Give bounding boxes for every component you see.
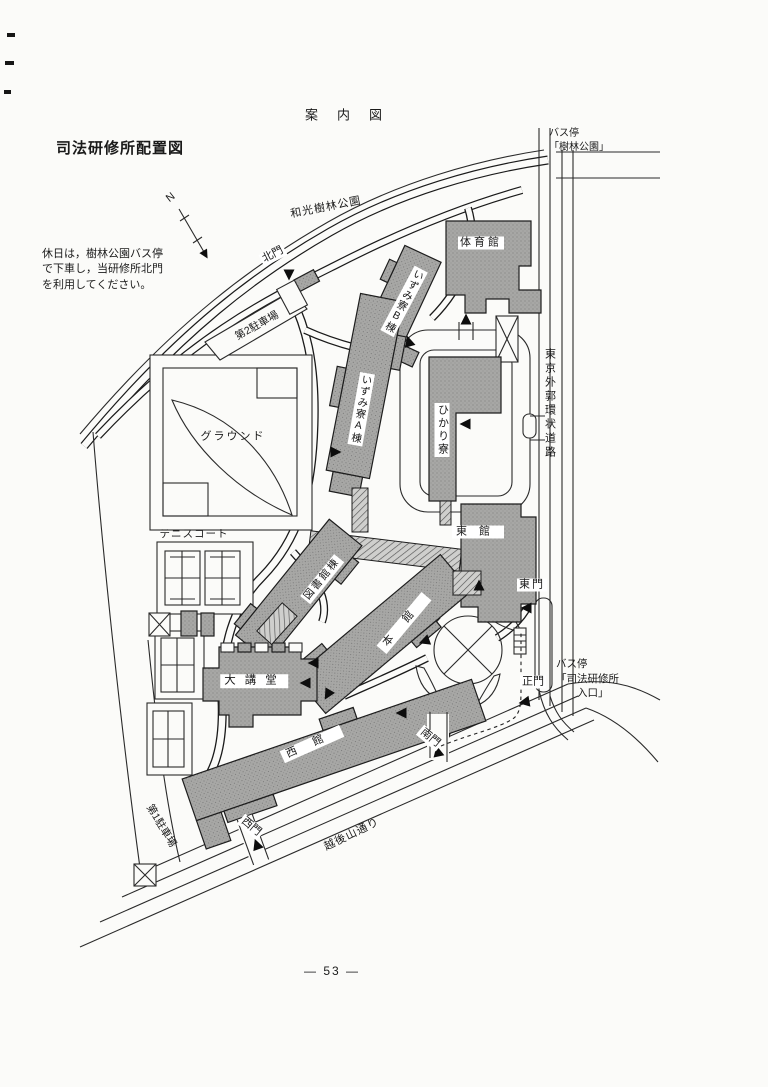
page-number: — 53 — (304, 965, 360, 977)
gym-label: 体育館 (458, 237, 504, 250)
hikari-entrance-arrow (460, 419, 471, 430)
utility-box-icon (149, 611, 214, 636)
east-building-label: 東館 (452, 526, 504, 539)
gaikan-road-label: 東京外郭環状道路 (544, 348, 555, 460)
page-title: 案 内 図 (305, 109, 385, 122)
north-gate-arrow (284, 270, 295, 281)
east-building (461, 504, 536, 622)
auditorium-walkway-tiles (221, 643, 302, 652)
scan-artifacts (4, 33, 15, 94)
tennis-court-label: テニスコート (160, 529, 229, 540)
scanned-page: 案 内 図 司法研修所配置図 休日は，樹林公園バス停 で下車し，当研修所北門 を… (0, 0, 768, 1087)
utility-box-icon-south (134, 864, 156, 886)
east-gate-label: 東門 (517, 579, 547, 592)
auditorium-label: 大講堂 (220, 674, 288, 688)
holiday-note: 休日は，樹林公園バス停 で下車し，当研修所北門 を利用してください。 (42, 247, 163, 293)
gym-building (446, 221, 541, 313)
site-map-drawing (0, 0, 768, 1087)
compass-north-arrow (179, 209, 211, 261)
ground-field (150, 355, 312, 530)
bus-stop-north-label: バス停 「樹林公園」 (549, 127, 609, 155)
ground-label: グラウンド (201, 432, 266, 443)
bus-stop-east-label: バス停 「司法研修所 入口」 (556, 657, 619, 701)
hikari-label: ひかり寮 (435, 403, 450, 457)
map-heading: 司法研修所配置図 (56, 141, 184, 156)
main-gate-label: 正門 (520, 676, 546, 689)
gym-entrance-arrow (461, 314, 472, 325)
